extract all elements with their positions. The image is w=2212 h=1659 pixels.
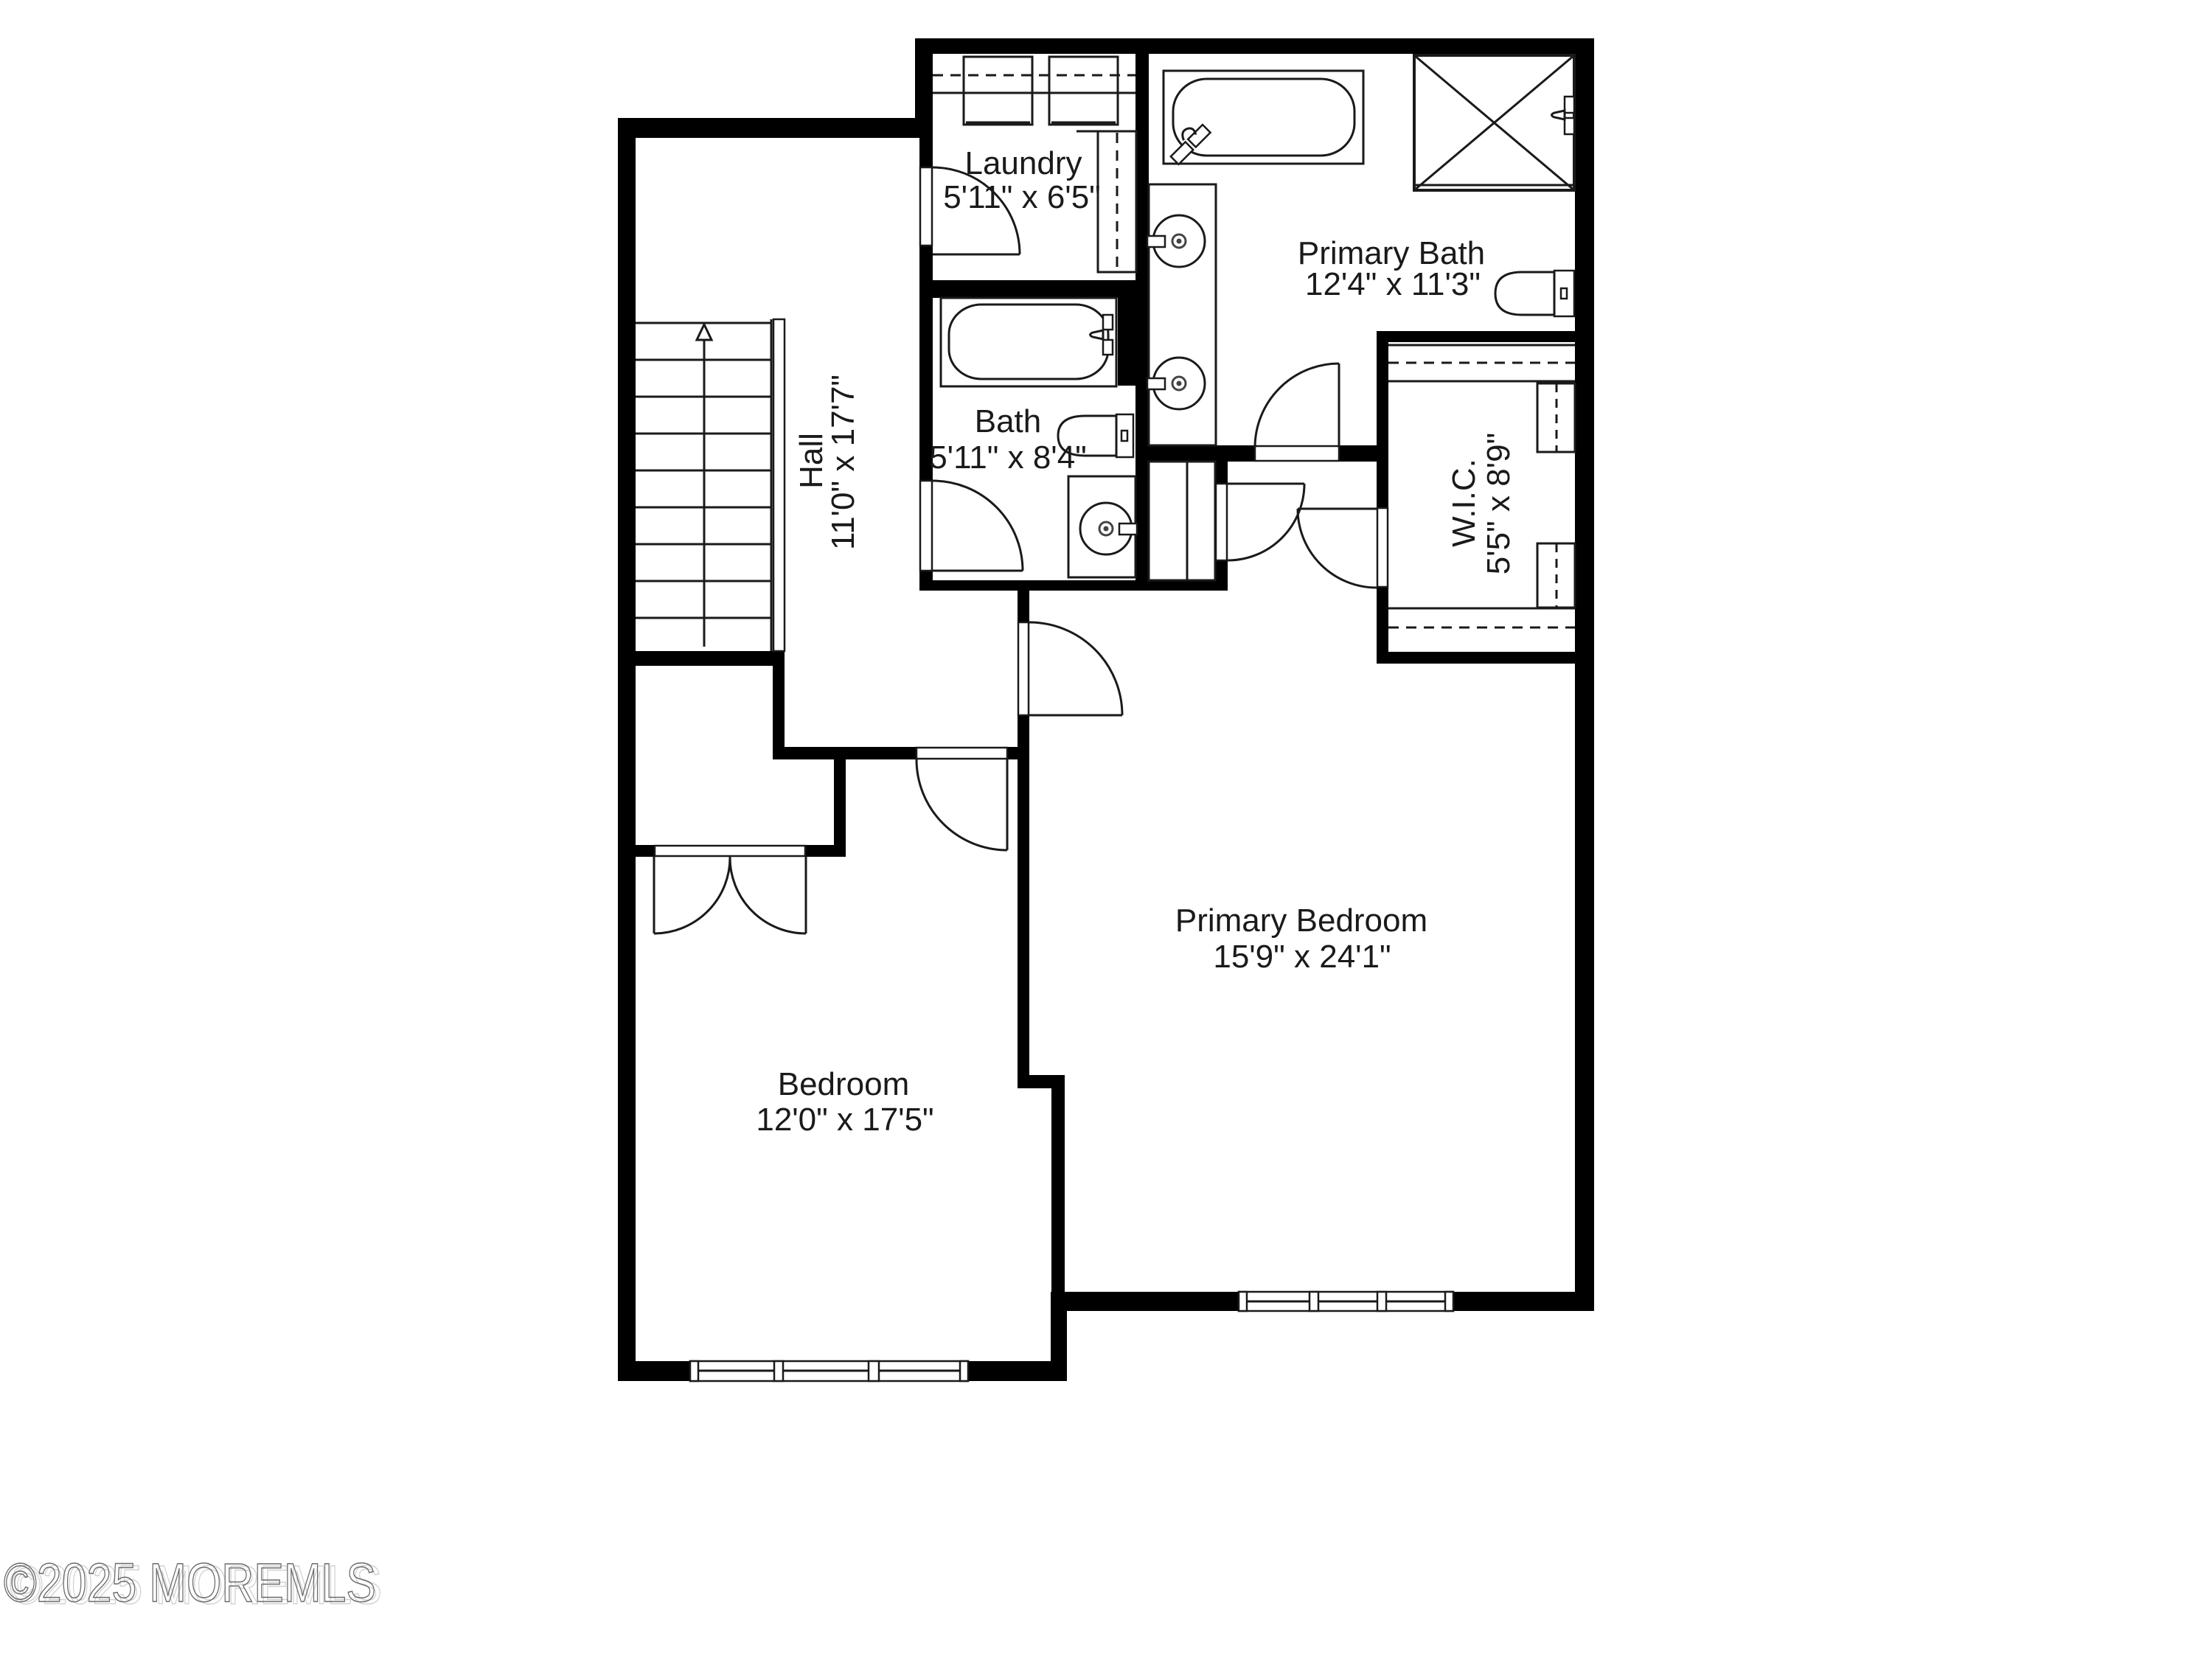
svg-text:5'11" x 8'4": 5'11" x 8'4" xyxy=(929,439,1087,476)
svg-text:Bedroom: Bedroom xyxy=(778,1066,910,1102)
svg-text:©2025 MOREMLS: ©2025 MOREMLS xyxy=(4,1552,376,1613)
svg-text:Primary Bedroom: Primary Bedroom xyxy=(1175,902,1427,939)
svg-text:15'9" x 24'1": 15'9" x 24'1" xyxy=(1213,939,1391,975)
svg-text:11'0" x 17'7": 11'0" x 17'7" xyxy=(825,375,861,550)
svg-text:Bath: Bath xyxy=(975,403,1042,439)
svg-text:Hall: Hall xyxy=(793,433,829,489)
svg-text:W.I.C.: W.I.C. xyxy=(1446,459,1482,547)
svg-text:12'0" x 17'5": 12'0" x 17'5" xyxy=(756,1102,933,1138)
svg-text:Laundry: Laundry xyxy=(964,145,1082,181)
svg-text:5'11" x 6'5": 5'11" x 6'5" xyxy=(943,179,1101,215)
svg-text:12'4" x 11'3": 12'4" x 11'3" xyxy=(1305,266,1481,302)
svg-text:5'5" x 8'9": 5'5" x 8'9" xyxy=(1481,433,1517,574)
